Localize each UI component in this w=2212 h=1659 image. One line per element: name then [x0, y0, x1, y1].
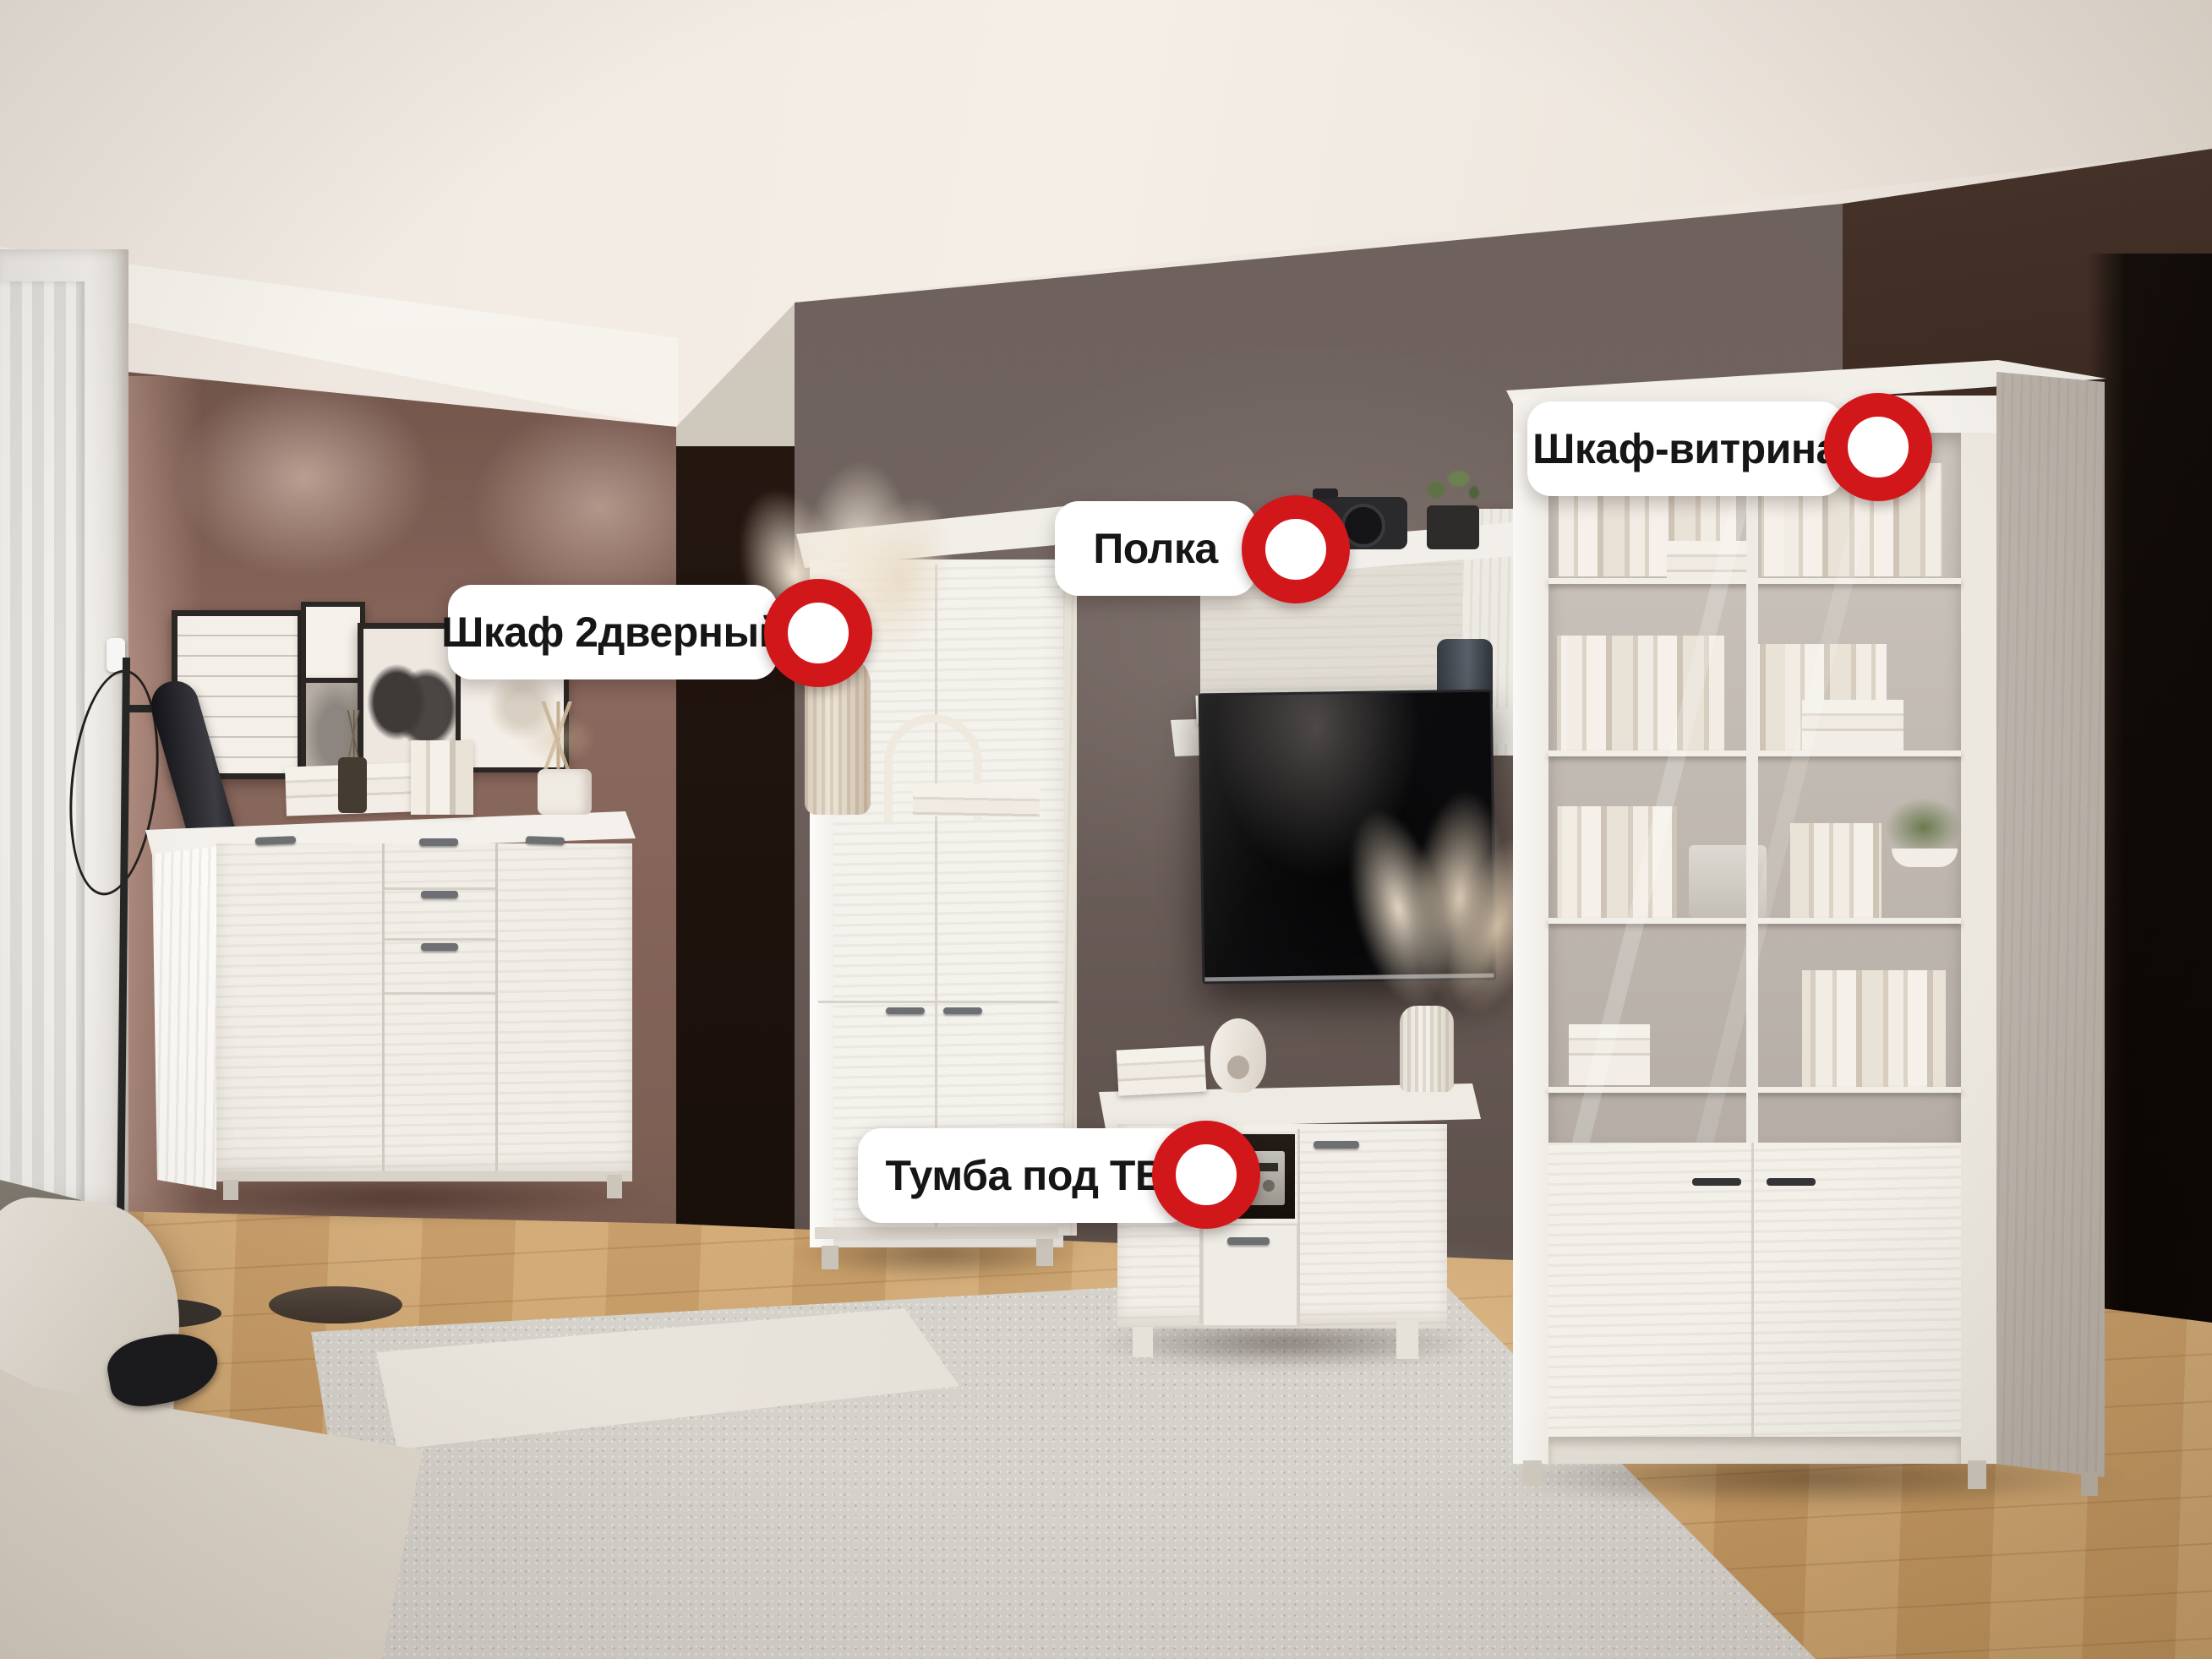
hotspot-display-cabinet[interactable]: Шкаф-витрина	[1527, 401, 1844, 496]
camera-top	[1313, 488, 1338, 499]
cabinet-foot	[1523, 1460, 1542, 1486]
dried-plant-sprays	[504, 701, 614, 776]
hotspot-label: Шкаф 2дверный	[441, 608, 784, 657]
tv-stand-leg	[1133, 1327, 1153, 1357]
wardrobe-foot	[1036, 1239, 1053, 1266]
drawer-gap	[385, 938, 495, 941]
door-gap	[495, 843, 498, 1181]
sideboard-door-handle	[255, 836, 296, 845]
sideboard-drawer-handle	[419, 838, 458, 846]
sideboard-foot	[607, 1175, 622, 1198]
dried-plant-pot	[538, 769, 592, 815]
drawer-gap	[385, 992, 495, 995]
cabinet-right-stile	[1961, 396, 1996, 1464]
cabinet-handle	[1692, 1178, 1741, 1186]
ozon-ring-icon[interactable]	[1242, 495, 1350, 603]
sideboard-drawer-handle	[421, 943, 458, 951]
tall-ribbed-vase	[1400, 1006, 1454, 1092]
cabinet-foot	[2081, 1472, 2098, 1496]
tv-stand-door-handle	[1314, 1141, 1359, 1149]
potted-plant-pot	[1427, 505, 1479, 549]
sculpt-vase	[1210, 1018, 1266, 1093]
cabinet-plinth	[1548, 1437, 1961, 1464]
books-stack	[1117, 1045, 1207, 1095]
potted-plant-leaves	[1413, 456, 1489, 512]
dark-recess-behind-cabinet	[2088, 254, 2212, 1344]
hotspot-pill[interactable]: Шкаф-витрина	[1527, 401, 1844, 496]
ozon-ring-icon[interactable]	[1824, 393, 1932, 501]
hotspot-label: Шкаф-витрина	[1532, 424, 1839, 473]
hotspot-pill[interactable]: Шкаф 2дверный	[448, 585, 778, 679]
sideboard-door-handle	[526, 836, 565, 845]
sideboard-plinth	[216, 1171, 632, 1181]
side-table	[269, 1286, 402, 1323]
door-gap	[382, 843, 385, 1181]
hotspot-label: Полка	[1093, 524, 1217, 573]
tv-stand-leg	[1396, 1320, 1418, 1359]
glass-display-area	[1548, 433, 1961, 1143]
glass-reflection	[1548, 433, 1961, 1143]
ozon-ring-icon[interactable]	[1152, 1121, 1260, 1229]
cabinet-lower-doors	[1548, 1143, 1961, 1437]
cabinet-left-stile	[1513, 396, 1548, 1464]
hotspot-shelf[interactable]: Полка	[1055, 501, 1256, 596]
wardrobe-foot	[822, 1246, 838, 1269]
drawer-gap	[385, 887, 495, 890]
hotspot-pill[interactable]: Полка	[1055, 501, 1256, 596]
decor-books-flat	[913, 783, 1040, 818]
door-gap	[1297, 1129, 1300, 1323]
hotspot-pill[interactable]: Тумба под ТВ	[858, 1128, 1193, 1223]
tv-stand-drawer	[1202, 1224, 1298, 1327]
reed-diffuser-bottle	[338, 757, 367, 813]
door-gap	[1751, 1143, 1754, 1437]
tv-stand-drawer-handle	[1227, 1237, 1270, 1245]
wardrobe-handle	[943, 1007, 982, 1014]
decor-books-upright	[411, 740, 473, 815]
sideboard-foot	[223, 1180, 238, 1200]
sideboard-drawer-handle	[421, 891, 458, 898]
hotspot-label: Тумба под ТВ	[885, 1151, 1165, 1200]
receiver-knob	[1263, 1180, 1275, 1192]
cabinet-foot	[1968, 1460, 1986, 1489]
annotated-room-photo: Шкаф 2дверный Полка Шкаф-витрина Тумба п…	[0, 0, 2212, 1659]
wardrobe-horizontal-seam	[818, 1001, 1058, 1003]
picture-frame-flower	[301, 602, 365, 683]
sideboard-front	[216, 843, 632, 1181]
cabinet-front	[1513, 396, 1996, 1464]
cabinet-handle	[1767, 1178, 1816, 1186]
ozon-ring-icon[interactable]	[764, 579, 872, 687]
hotspot-tv-stand[interactable]: Тумба под ТВ	[858, 1128, 1193, 1223]
wardrobe-handle	[886, 1007, 925, 1014]
wardrobe-plinth	[815, 1227, 1058, 1239]
reed-diffuser-sticks	[340, 710, 369, 761]
hotspot-wardrobe-2door[interactable]: Шкаф 2дверный	[448, 585, 778, 679]
sculpt-vase-hole	[1227, 1056, 1249, 1079]
